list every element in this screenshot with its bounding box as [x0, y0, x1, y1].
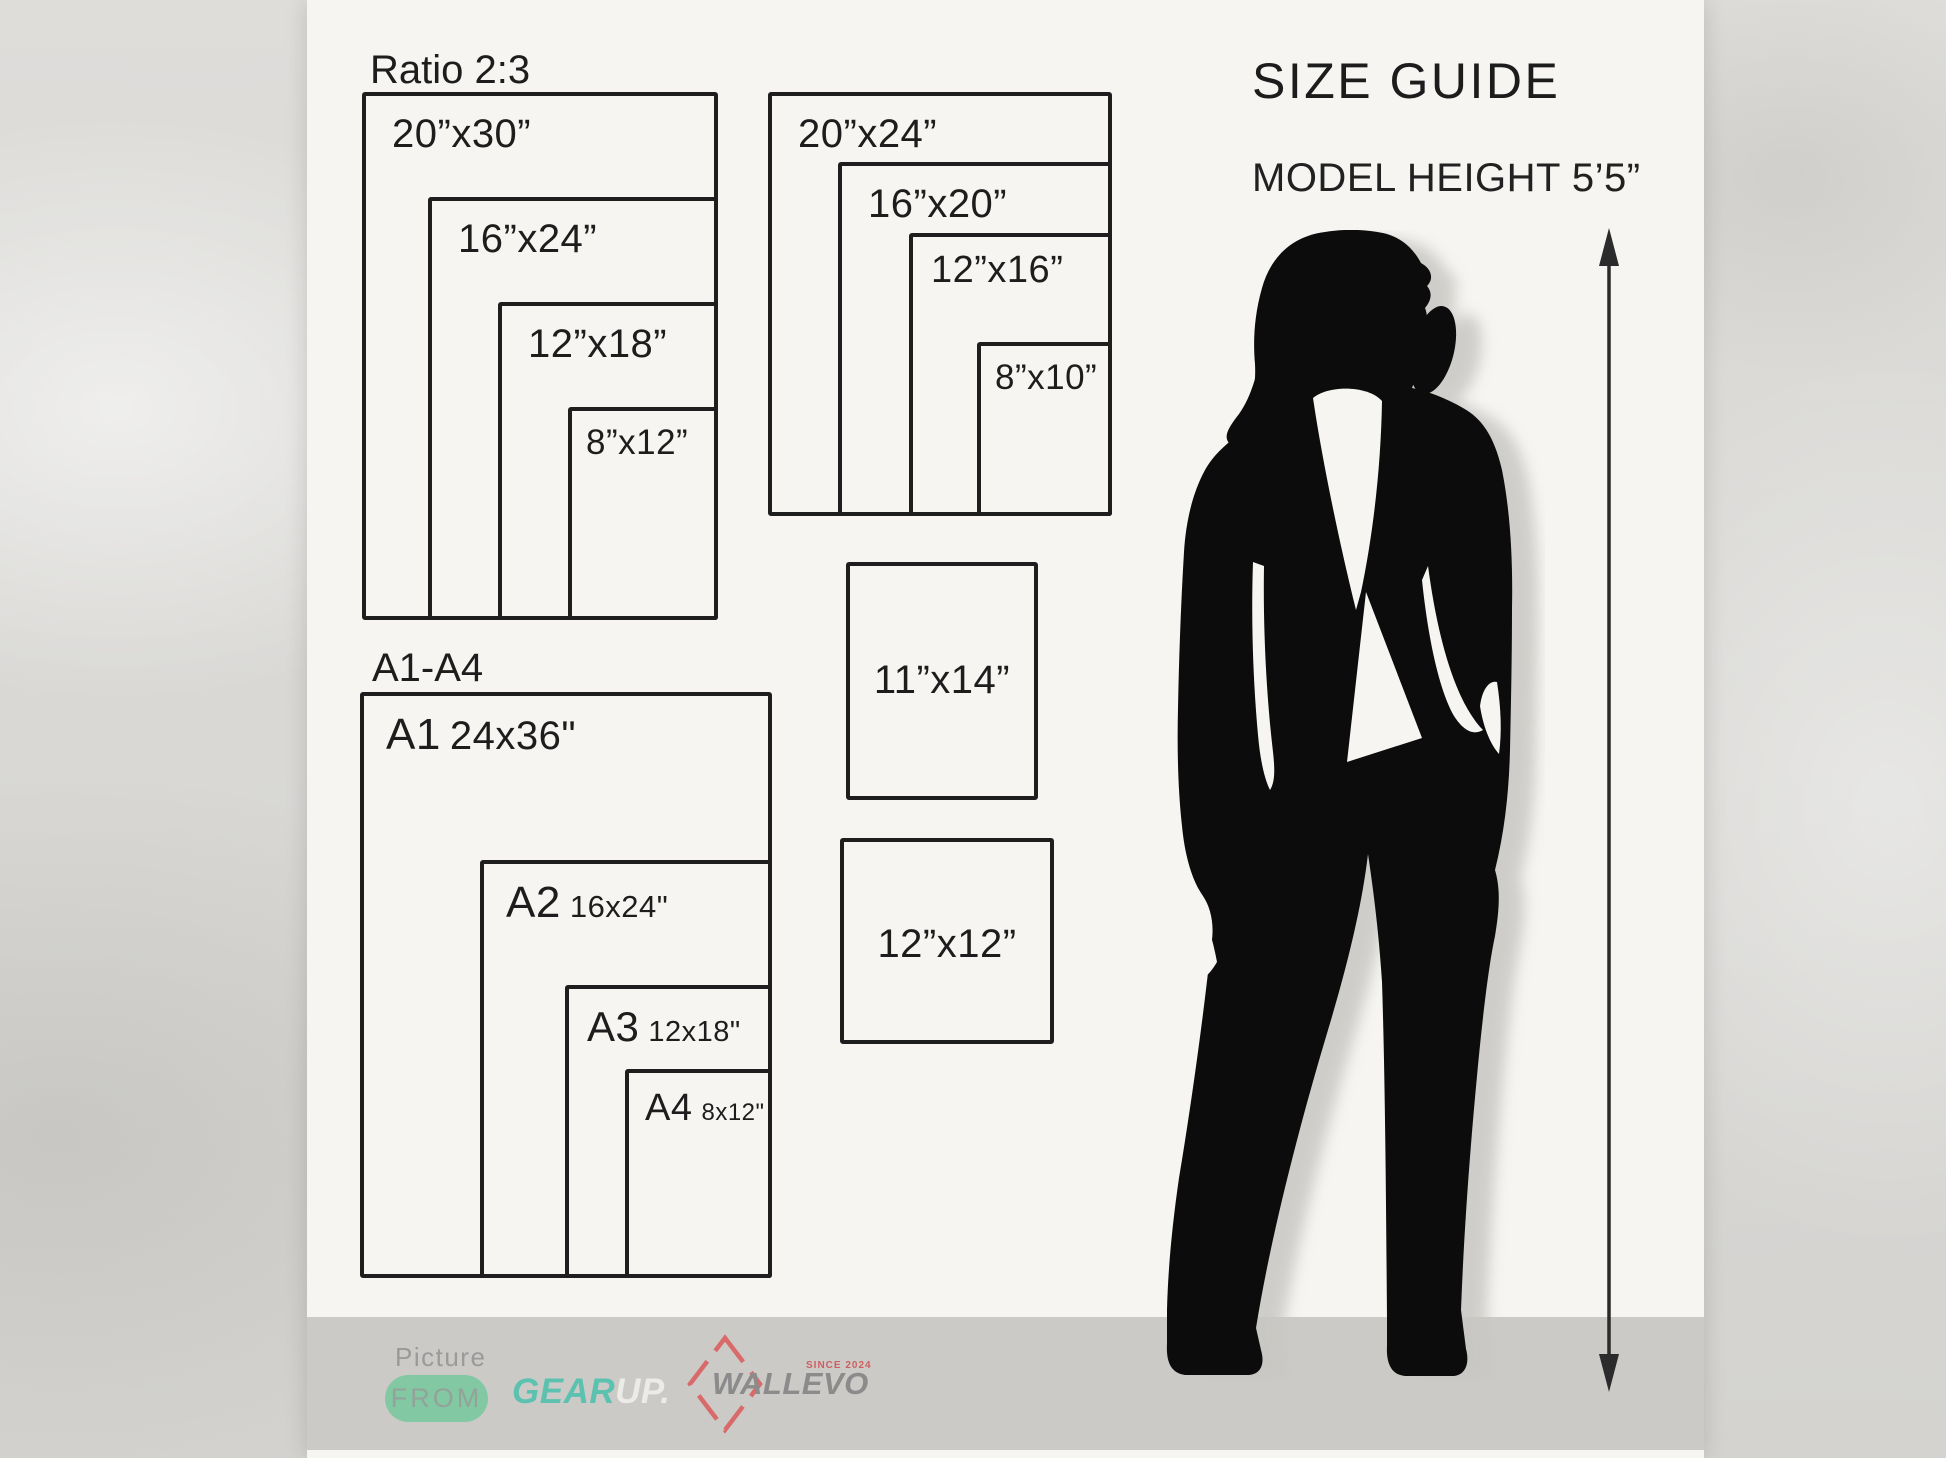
size-box-label: 20”x24” [772, 96, 1108, 157]
size-box-label: 20”x30” [366, 96, 714, 157]
size-box-label: 12”x12” [844, 842, 1050, 967]
gearup-logo: GEARUP. [512, 1372, 670, 1412]
ratio-group-label: Ratio 2:3 [370, 48, 530, 93]
gearup-logo-gear: GEAR [512, 1372, 615, 1411]
size-box-label: 16”x24” [432, 201, 714, 262]
from-badge: FROM [385, 1375, 488, 1422]
a-size-name: A2 [506, 878, 561, 928]
size-box-label: 16”x20” [842, 166, 1108, 227]
a-size-dim: 12x18" [648, 1016, 740, 1049]
size-box-label: 11”x14” [850, 566, 1034, 703]
gearup-logo-up: UP. [615, 1372, 670, 1411]
a-size-dim: 8x12" [701, 1099, 764, 1127]
a-size-name: A4 [645, 1087, 692, 1130]
page-title: SIZE GUIDE [1252, 52, 1560, 110]
a-size-name: A3 [587, 1003, 639, 1051]
model-height-label: MODEL HEIGHT 5’5” [1252, 156, 1641, 201]
size-box-12x12: 12”x12” [840, 838, 1054, 1044]
size-box-8x12: 8”x12” [568, 407, 718, 620]
size-box-label: 8”x12” [572, 411, 714, 463]
size-box-11x14: 11”x14” [846, 562, 1038, 800]
size-box-8x10: 8”x10” [977, 342, 1112, 516]
height-arrow-icon [1588, 224, 1630, 1396]
size-box-a4: A48x12" [625, 1069, 772, 1278]
a-group-label: A1-A4 [372, 646, 483, 691]
picture-label: Picture [395, 1342, 486, 1373]
wallevo-logo: WALLEVO [712, 1366, 869, 1402]
model-silhouette [1165, 230, 1545, 1380]
a-size-dim: 16x24" [570, 889, 668, 925]
a-size-dim: 24x36" [450, 714, 576, 759]
a-size-name: A1 [386, 710, 441, 760]
size-box-label: 12”x16” [913, 237, 1108, 292]
size-box-label: 8”x10” [981, 346, 1108, 398]
size-box-label: 12”x18” [502, 306, 714, 367]
